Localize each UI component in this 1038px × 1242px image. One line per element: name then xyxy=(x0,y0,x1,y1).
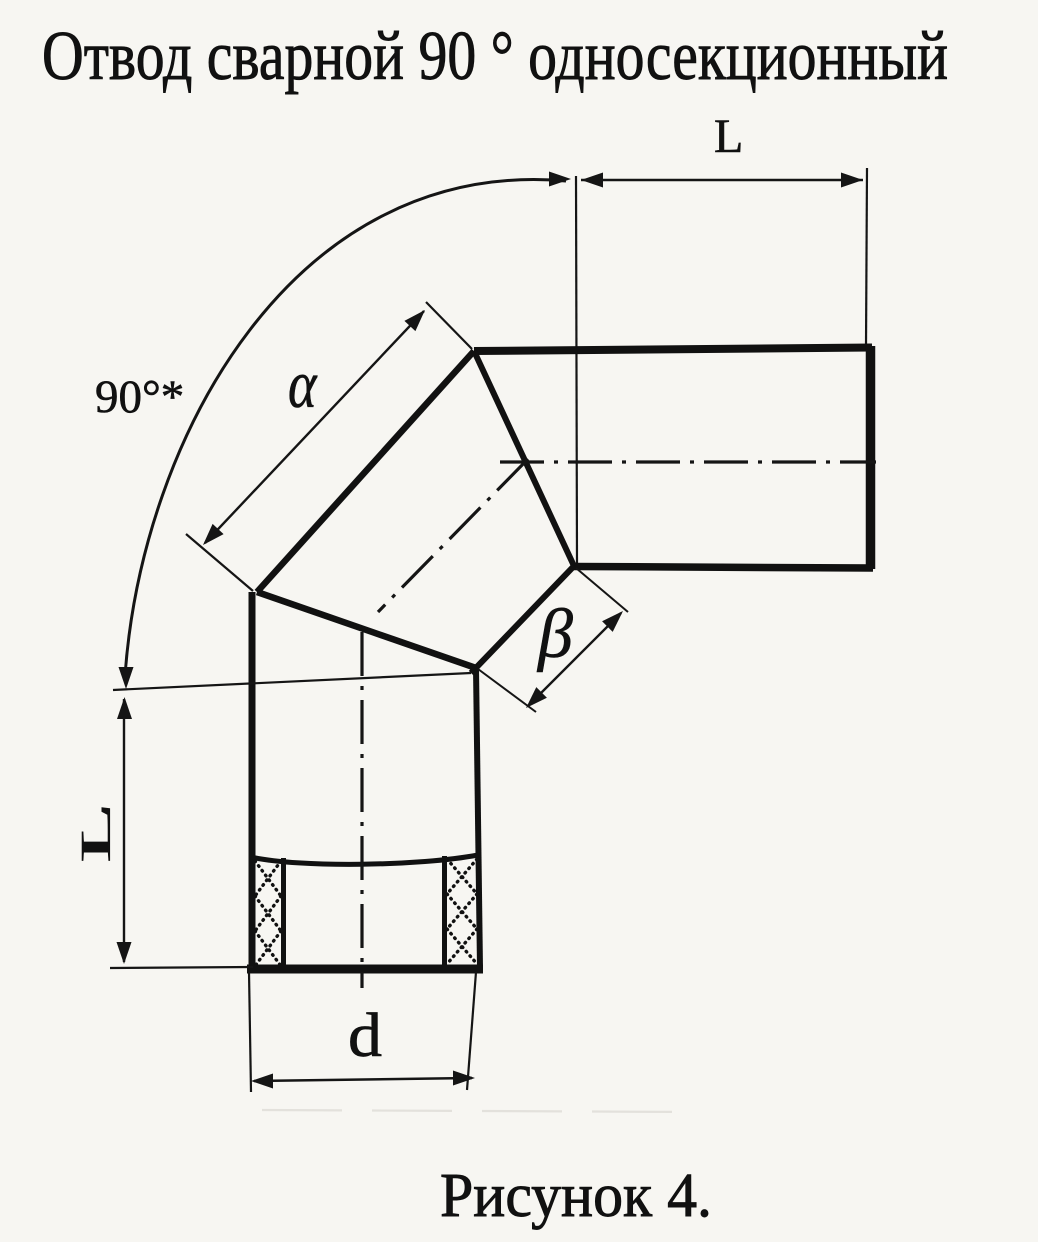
svg-text:α: α xyxy=(288,347,318,422)
svg-text:d: d xyxy=(348,1002,382,1070)
svg-text:L: L xyxy=(74,802,120,863)
svg-text:Рисунок 4.: Рисунок 4. xyxy=(440,1162,712,1230)
svg-text:Отвод сварной 90 ° односекцион: Отвод сварной 90 ° односекционный xyxy=(42,18,948,95)
svg-text:β: β xyxy=(536,596,573,673)
svg-text:90°*: 90°* xyxy=(95,371,184,423)
svg-text:L: L xyxy=(714,110,743,163)
